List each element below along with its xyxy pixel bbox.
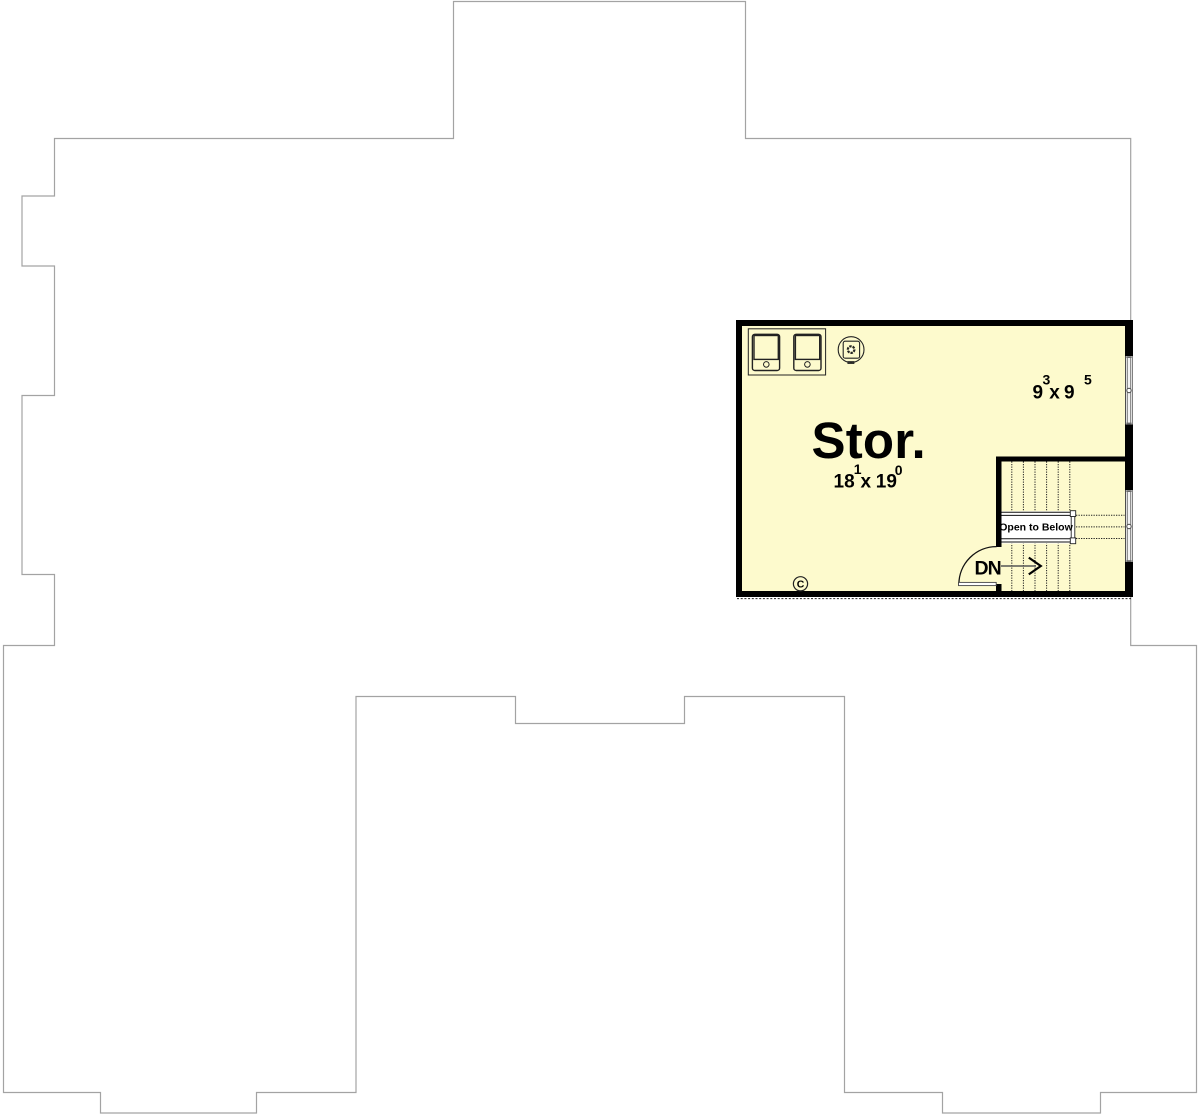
svg-text:Open to Below: Open to Below <box>999 522 1073 534</box>
svg-text:19: 19 <box>876 472 897 493</box>
svg-text:x: x <box>1049 382 1060 403</box>
svg-text:9: 9 <box>1033 382 1044 403</box>
svg-text:9: 9 <box>1064 382 1075 403</box>
svg-text:0: 0 <box>895 462 903 478</box>
svg-text:C: C <box>797 579 805 591</box>
svg-text:DN: DN <box>975 558 1001 580</box>
svg-text:x: x <box>861 472 872 493</box>
svg-text:18: 18 <box>834 472 855 493</box>
svg-text:5: 5 <box>1084 372 1092 388</box>
svg-text:Stor.: Stor. <box>812 412 926 469</box>
